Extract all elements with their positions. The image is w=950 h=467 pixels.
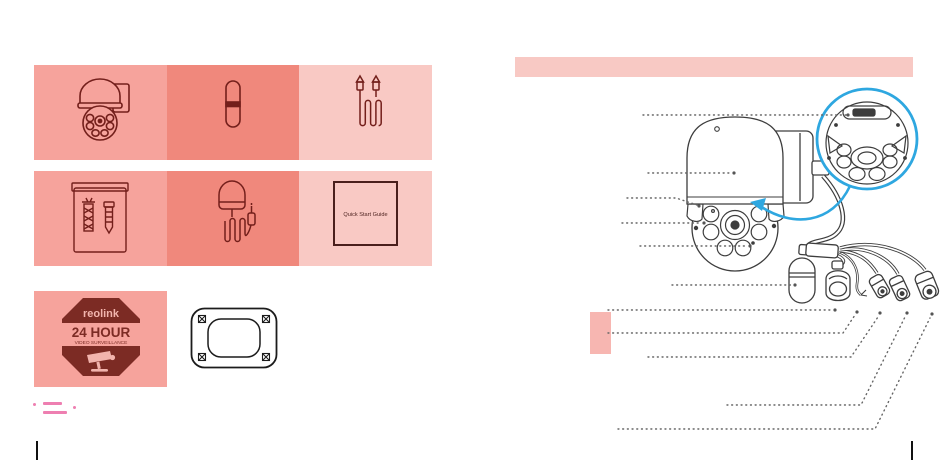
ptz-camera-illustration <box>585 85 950 445</box>
leader-dc <box>648 317 878 357</box>
footnote-dot <box>73 406 76 409</box>
surveillance-sticker-icon: reolink 24 HOUR VIDEO SURVEILLANCE <box>53 293 149 385</box>
quick-start-guide-label: Quick Start Guide <box>343 212 387 218</box>
quick-start-guide-icon: Quick Start Guide <box>299 171 432 266</box>
box-tile-cable <box>299 65 432 160</box>
camera-bottom-closeup <box>817 89 917 189</box>
mounting-hole-template-icon <box>190 307 278 369</box>
footnote-dash <box>43 402 62 405</box>
box-tile-screws <box>34 171 167 266</box>
section-title-bar <box>515 57 913 77</box>
box-tile-quick-start-guide: Quick Start Guide <box>299 171 432 266</box>
dc-connector <box>868 273 891 299</box>
waterproof-cap <box>789 258 815 303</box>
antenna-icon <box>167 65 299 160</box>
ptz-camera-icon <box>34 65 167 160</box>
power-connector <box>888 274 911 302</box>
leader-power <box>727 317 905 405</box>
footnote-dot <box>33 403 36 406</box>
quick-start-guide-spread: { "left_page": { "box_tiles": [ { "icon"… <box>0 0 950 467</box>
screw-marks <box>199 316 270 361</box>
sticker-tile: reolink 24 HOUR VIDEO SURVEILLANCE <box>34 291 167 387</box>
footnote-dash <box>43 411 67 414</box>
lan-connector <box>826 261 850 301</box>
antenna-extension-cable-icon <box>299 65 432 160</box>
sticker-title: 24 HOUR <box>71 325 130 340</box>
camera-dome <box>687 117 783 204</box>
antenna-connector <box>914 270 941 301</box>
sticker-brand: reolink <box>82 308 119 320</box>
cable-junction <box>799 242 839 258</box>
leader-reset <box>608 315 855 333</box>
box-tile-antenna <box>167 65 299 160</box>
power-adapter-icon <box>167 171 299 266</box>
box-tile-camera <box>34 65 167 160</box>
box-tile-power-adapter <box>167 171 299 266</box>
leader-antenna <box>618 318 930 429</box>
crop-mark-left <box>36 441 38 460</box>
screw-pack-icon <box>34 171 167 266</box>
sticker-subtitle: VIDEO SURVEILLANCE <box>74 340 127 346</box>
reset-wire <box>861 290 867 296</box>
lens <box>731 221 739 229</box>
